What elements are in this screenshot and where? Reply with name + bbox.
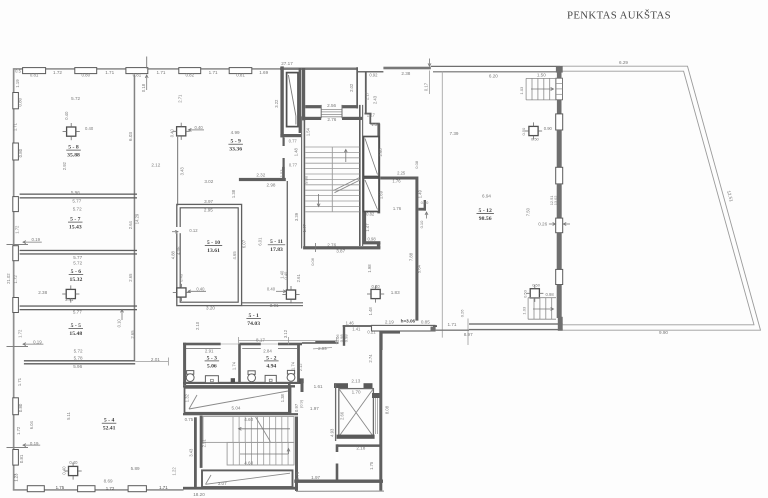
svg-text:0.40: 0.40 (85, 126, 94, 131)
svg-text:3.97: 3.97 (204, 199, 213, 204)
svg-text:0.77: 0.77 (289, 163, 298, 168)
svg-text:2.12: 2.12 (151, 163, 160, 168)
svg-text:14.29: 14.29 (135, 213, 140, 224)
svg-text:0.40: 0.40 (283, 271, 288, 280)
svg-text:1.50: 1.50 (537, 72, 546, 77)
svg-text:2.19: 2.19 (385, 320, 394, 325)
svg-text:2.64: 2.64 (128, 220, 133, 229)
svg-text:0.17: 0.17 (424, 82, 429, 91)
svg-text:0.50: 0.50 (531, 136, 540, 141)
svg-text:0.40: 0.40 (372, 284, 381, 289)
svg-text:(0.9): (0.9) (298, 399, 303, 408)
svg-text:5 - 9: 5 - 9 (230, 139, 241, 145)
svg-text:2.56: 2.56 (327, 103, 336, 108)
svg-text:5.89: 5.89 (131, 466, 140, 471)
svg-text:4.06: 4.06 (176, 246, 181, 255)
svg-text:2.61: 2.61 (296, 274, 301, 283)
svg-text:1.03: 1.03 (519, 86, 524, 95)
svg-text:5 - 2: 5 - 2 (266, 355, 277, 361)
svg-text:1.53: 1.53 (279, 169, 284, 178)
svg-text:5.72: 5.72 (73, 261, 82, 266)
svg-text:2.74: 2.74 (368, 354, 373, 363)
svg-text:1.72: 1.72 (13, 275, 18, 284)
svg-text:2.95: 2.95 (204, 208, 213, 213)
svg-text:1.32: 1.32 (185, 393, 190, 402)
svg-text:0.40: 0.40 (267, 286, 276, 291)
svg-text:3.22: 3.22 (274, 99, 279, 108)
svg-text:0.80: 0.80 (18, 403, 23, 412)
svg-text:6.04: 6.04 (29, 420, 34, 429)
svg-text:8.08: 8.08 (385, 405, 390, 414)
svg-text:2.02: 2.02 (349, 83, 354, 92)
svg-text:0.26: 0.26 (538, 221, 547, 226)
svg-text:2.12: 2.12 (298, 363, 303, 372)
svg-text:6.79: 6.79 (295, 471, 300, 480)
svg-text:0.26: 0.26 (460, 309, 465, 318)
svg-text:5 - 10: 5 - 10 (207, 240, 220, 246)
svg-text:1.38: 1.38 (231, 189, 236, 198)
svg-text:4.88: 4.88 (170, 250, 175, 259)
svg-text:1.76: 1.76 (392, 179, 401, 184)
svg-text:2.84: 2.84 (263, 349, 272, 354)
svg-text:5 - 1: 5 - 1 (248, 313, 259, 319)
svg-text:5 - 4: 5 - 4 (104, 418, 115, 424)
svg-text:1.72: 1.72 (14, 225, 19, 234)
svg-text:5.72: 5.72 (73, 206, 82, 211)
svg-text:h=3.06: h=3.06 (401, 318, 416, 323)
svg-text:1.71: 1.71 (17, 377, 22, 386)
svg-text:27.17: 27.17 (281, 61, 293, 66)
svg-text:1.71: 1.71 (448, 322, 457, 327)
svg-text:0.40: 0.40 (179, 273, 184, 282)
svg-text:2.92: 2.92 (62, 161, 67, 170)
svg-text:9.90: 9.90 (659, 330, 668, 335)
svg-text:1.83: 1.83 (391, 290, 400, 295)
svg-text:1.61: 1.61 (314, 384, 323, 389)
svg-text:1.17: 1.17 (367, 112, 376, 117)
svg-text:0.82: 0.82 (186, 72, 195, 77)
svg-text:2.18: 2.18 (356, 446, 365, 451)
svg-text:3.87: 3.87 (336, 249, 345, 254)
svg-text:0.40: 0.40 (421, 200, 430, 205)
svg-text:1.72: 1.72 (18, 329, 23, 338)
svg-text:6.03: 6.03 (128, 132, 133, 141)
svg-text:0.12: 0.12 (189, 228, 198, 233)
svg-text:5 - 5: 5 - 5 (71, 323, 82, 329)
svg-text:2.38: 2.38 (401, 71, 410, 76)
svg-text:1.76: 1.76 (393, 206, 402, 211)
svg-text:0.80: 0.80 (18, 148, 23, 157)
svg-text:0.40: 0.40 (170, 128, 175, 137)
svg-text:1.71: 1.71 (209, 70, 218, 75)
svg-text:3.43: 3.43 (189, 448, 194, 457)
svg-text:0.81: 0.81 (30, 72, 39, 77)
svg-text:1.98: 1.98 (367, 264, 372, 273)
svg-text:1.75: 1.75 (369, 461, 374, 470)
svg-text:2.10: 2.10 (195, 321, 200, 330)
svg-text:8.69: 8.69 (104, 479, 113, 484)
svg-text:13.02: 13.02 (553, 196, 558, 206)
svg-text:0.98: 0.98 (546, 292, 555, 297)
svg-text:3.12: 3.12 (283, 329, 288, 338)
svg-text:3.07: 3.07 (218, 481, 227, 486)
svg-text:0.40: 0.40 (196, 286, 205, 291)
svg-text:8.17: 8.17 (256, 338, 265, 343)
svg-text:4.93: 4.93 (330, 428, 335, 437)
svg-text:3.02: 3.02 (204, 179, 213, 184)
svg-text:5.78: 5.78 (74, 356, 83, 361)
svg-text:1.97: 1.97 (311, 475, 320, 480)
svg-text:0.50: 0.50 (532, 283, 541, 288)
svg-text:2.51: 2.51 (202, 439, 207, 448)
svg-text:2.01: 2.01 (151, 357, 160, 362)
svg-text:1.72: 1.72 (53, 70, 62, 75)
svg-text:1.41: 1.41 (352, 326, 361, 331)
svg-text:1.72: 1.72 (106, 486, 115, 491)
svg-text:6.01: 6.01 (258, 237, 263, 246)
svg-text:0.50: 0.50 (522, 289, 527, 298)
svg-text:2.71: 2.71 (178, 94, 183, 103)
svg-text:2.76: 2.76 (327, 117, 336, 122)
svg-text:5 - 11: 5 - 11 (270, 239, 283, 245)
svg-text:1.72: 1.72 (16, 426, 21, 435)
svg-text:5 - 8: 5 - 8 (68, 145, 79, 151)
svg-text:5.77: 5.77 (72, 199, 81, 204)
svg-text:1.54: 1.54 (306, 127, 311, 136)
svg-text:35.88: 35.88 (67, 153, 80, 159)
svg-text:1.71: 1.71 (105, 70, 114, 75)
svg-text:0.80: 0.80 (18, 97, 23, 106)
svg-text:0.08: 0.08 (414, 160, 419, 169)
svg-text:1.48: 1.48 (294, 147, 299, 156)
svg-text:13.61: 13.61 (207, 248, 220, 254)
svg-text:0.40: 0.40 (62, 466, 67, 475)
svg-text:1.71: 1.71 (157, 70, 166, 75)
svg-text:0.19: 0.19 (30, 441, 39, 446)
svg-text:5.72: 5.72 (71, 96, 80, 101)
svg-text:0.85: 0.85 (421, 320, 430, 325)
svg-text:18.20: 18.20 (193, 492, 205, 497)
svg-text:4.65: 4.65 (232, 251, 237, 260)
svg-text:33.36: 33.36 (229, 147, 242, 153)
svg-text:0.06: 0.06 (310, 257, 315, 266)
svg-text:3.01: 3.01 (270, 303, 279, 308)
svg-text:74.03: 74.03 (247, 321, 260, 327)
svg-text:0.80: 0.80 (82, 72, 91, 77)
svg-text:2.17: 2.17 (365, 91, 370, 100)
svg-text:1.71: 1.71 (159, 485, 168, 490)
svg-text:2.66: 2.66 (339, 411, 344, 420)
svg-text:15.32: 15.32 (70, 277, 83, 283)
svg-text:1.74: 1.74 (231, 361, 236, 370)
svg-text:2.41: 2.41 (65, 297, 74, 302)
svg-text:2.60: 2.60 (378, 148, 383, 157)
svg-text:4.94: 4.94 (266, 363, 276, 369)
svg-text:0.98: 0.98 (368, 237, 377, 242)
svg-text:8.97: 8.97 (464, 332, 473, 337)
svg-text:5.64: 5.64 (417, 264, 422, 273)
svg-text:0.92: 0.92 (369, 72, 378, 77)
svg-text:0.40: 0.40 (69, 460, 78, 465)
svg-text:5.11: 5.11 (66, 411, 71, 420)
svg-text:21.02: 21.02 (6, 273, 11, 284)
svg-text:4.60: 4.60 (244, 461, 253, 466)
svg-text:2.32: 2.32 (256, 172, 265, 177)
svg-text:5 - 12: 5 - 12 (479, 208, 492, 214)
svg-text:5.96: 5.96 (73, 364, 82, 369)
svg-text:1.03: 1.03 (521, 306, 526, 315)
svg-text:0.19: 0.19 (32, 237, 41, 242)
svg-text:1.48: 1.48 (368, 307, 373, 316)
svg-text:98.56: 98.56 (479, 216, 492, 222)
svg-text:1.97: 1.97 (310, 406, 319, 411)
svg-text:1.49: 1.49 (417, 189, 422, 198)
svg-text:5.06: 5.06 (207, 363, 217, 369)
svg-text:1.69: 1.69 (378, 190, 383, 199)
svg-text:1.47: 1.47 (302, 224, 307, 233)
svg-text:0.10: 0.10 (116, 319, 121, 328)
svg-text:7.50: 7.50 (526, 207, 531, 216)
svg-text:0.10: 0.10 (419, 220, 424, 229)
svg-text:1.46: 1.46 (346, 320, 355, 325)
svg-text:1.69: 1.69 (259, 70, 268, 75)
svg-text:1.22: 1.22 (172, 467, 177, 476)
svg-text:52.41: 52.41 (103, 426, 116, 432)
svg-text:3.43: 3.43 (180, 167, 185, 176)
svg-text:2.38: 2.38 (38, 290, 47, 295)
svg-text:1.47: 1.47 (365, 223, 370, 232)
svg-text:3.39: 3.39 (294, 212, 299, 221)
svg-text:2.25: 2.25 (397, 171, 406, 176)
svg-text:0.40: 0.40 (64, 111, 69, 120)
svg-text:1.23: 1.23 (13, 473, 18, 482)
svg-text:1.70: 1.70 (352, 389, 361, 394)
svg-text:1.74: 1.74 (291, 361, 296, 370)
svg-text:PENKTAS AUKŠTAS: PENKTAS AUKŠTAS (567, 9, 671, 21)
svg-text:1.19: 1.19 (15, 79, 20, 88)
svg-text:0.81: 0.81 (19, 454, 24, 463)
svg-text:0.90: 0.90 (544, 126, 553, 131)
svg-text:5.04: 5.04 (232, 406, 241, 411)
svg-text:3.20: 3.20 (206, 306, 215, 311)
svg-text:5 - 6: 5 - 6 (71, 269, 82, 275)
svg-text:5 - 7: 5 - 7 (70, 217, 81, 223)
svg-text:15.48: 15.48 (69, 331, 82, 337)
svg-text:7.39: 7.39 (450, 131, 459, 136)
svg-text:5.77: 5.77 (73, 255, 82, 260)
svg-text:5.72: 5.72 (74, 349, 83, 354)
svg-text:5.96: 5.96 (71, 190, 80, 195)
svg-text:2.65: 2.65 (130, 330, 135, 339)
svg-text:4.60: 4.60 (244, 417, 253, 422)
svg-text:6.29: 6.29 (619, 60, 628, 65)
svg-text:2.76: 2.76 (327, 242, 336, 247)
svg-text:1.75: 1.75 (56, 485, 65, 490)
svg-text:6.94: 6.94 (482, 193, 491, 198)
svg-text:0.18: 0.18 (141, 83, 146, 92)
svg-text:4.99: 4.99 (231, 130, 240, 135)
svg-text:1.38: 1.38 (280, 393, 285, 402)
svg-text:2.43: 2.43 (373, 95, 378, 104)
svg-text:0.77: 0.77 (289, 138, 298, 143)
svg-text:15.43: 15.43 (69, 225, 82, 231)
svg-text:0.81: 0.81 (236, 72, 245, 77)
svg-text:0.19: 0.19 (33, 340, 42, 345)
svg-text:0.5: 0.5 (15, 68, 21, 73)
svg-text:2.65: 2.65 (128, 273, 133, 282)
svg-text:2.98: 2.98 (267, 182, 276, 187)
svg-text:5 - 3: 5 - 3 (207, 355, 218, 361)
svg-text:9.00: 9.00 (304, 175, 309, 184)
svg-text:0.40: 0.40 (195, 125, 204, 130)
svg-text:5.77: 5.77 (73, 309, 82, 314)
svg-text:7.88: 7.88 (409, 252, 414, 261)
svg-text:0.75: 0.75 (185, 417, 194, 422)
svg-text:1.71: 1.71 (13, 122, 18, 131)
svg-text:0.50: 0.50 (521, 127, 526, 136)
svg-text:6.07: 6.07 (241, 239, 246, 248)
svg-text:2.91: 2.91 (205, 348, 214, 353)
svg-text:17.83: 17.83 (270, 247, 283, 253)
svg-text:6.20: 6.20 (489, 74, 498, 79)
svg-text:2.13: 2.13 (351, 378, 360, 383)
